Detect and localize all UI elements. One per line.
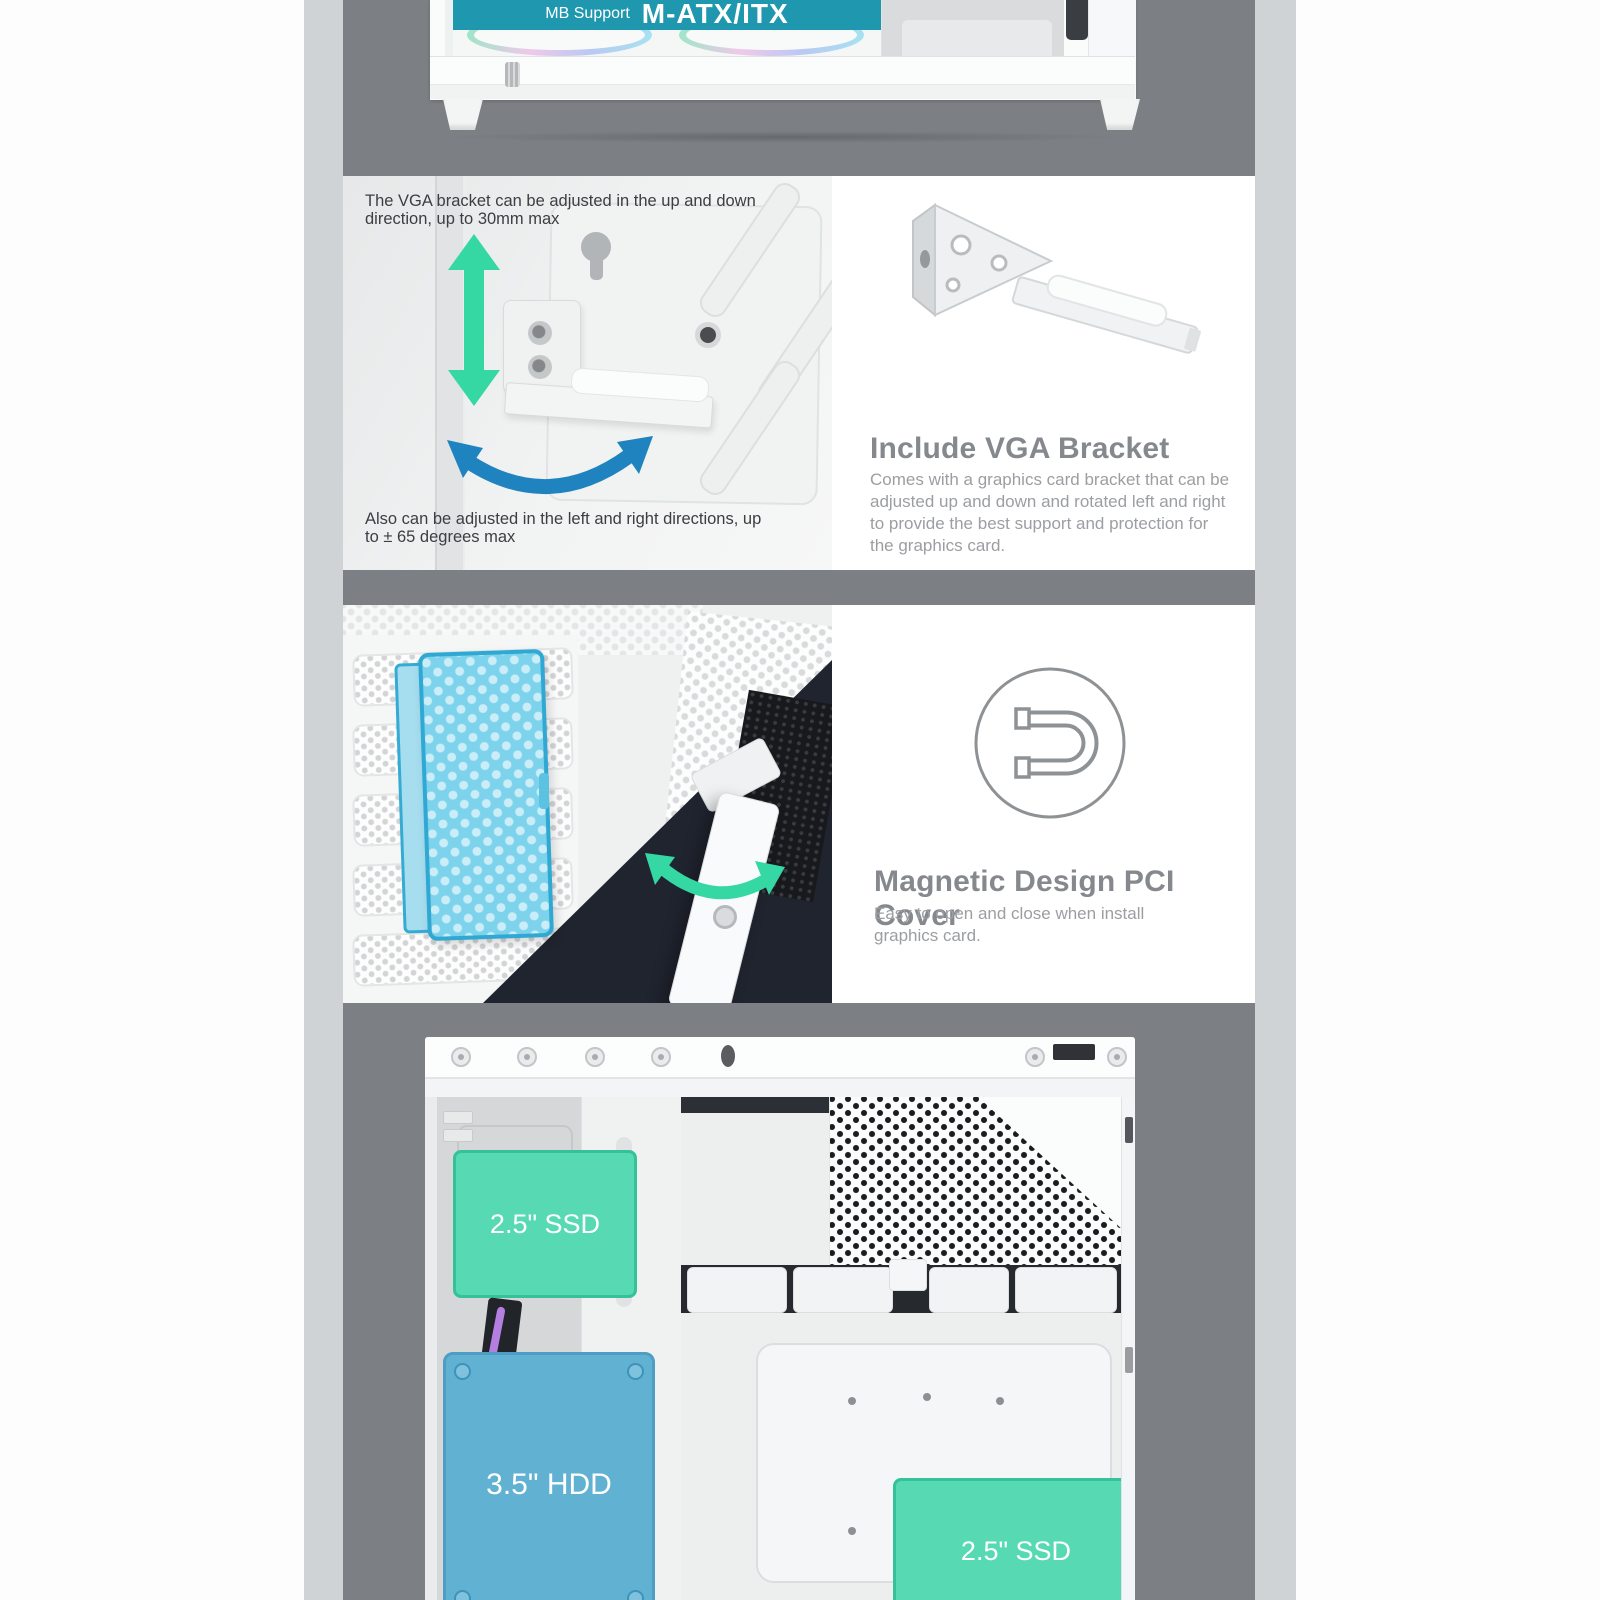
case-rear-edge: [1121, 1097, 1135, 1600]
screw-icon: [1107, 1047, 1127, 1067]
rotate-arrow-small-icon: [643, 851, 787, 917]
ssd-top-label: 2.5" SSD: [490, 1209, 600, 1240]
section-vga-bracket: The VGA bracket can be adjusted in the u…: [343, 176, 1255, 570]
ssd-top: 2.5" SSD: [453, 1150, 637, 1298]
keyhole-slot: [590, 256, 603, 280]
case-top-lip: [425, 1079, 1135, 1098]
thumbscrew-knob: [505, 62, 520, 87]
case-interior-floor: [882, 0, 1064, 56]
grommet-clip: [889, 1259, 927, 1291]
pci-cover-photo: [343, 605, 832, 1003]
tempered-glass-panel: MB Support M-ATX/ITX: [445, 0, 882, 56]
grommet-cover: [793, 1267, 893, 1313]
standoff-hole: [923, 1393, 931, 1401]
left-gray-strip: [304, 0, 343, 1600]
standoff-hole: [848, 1397, 856, 1405]
case-bottom-frame: [430, 56, 1135, 100]
bracket-swivel-block: [503, 300, 581, 394]
cable-clip: [443, 1129, 473, 1142]
ssd-bottom-label: 2.5" SSD: [961, 1536, 1071, 1567]
standoff-hole: [848, 1527, 856, 1535]
psu-shroud: [829, 1097, 1121, 1267]
right-gray-strip: [1255, 0, 1296, 1600]
hdd-drive: 3.5" HDD: [443, 1352, 655, 1600]
grommet-cover: [687, 1267, 787, 1313]
screw-icon: [454, 1590, 471, 1600]
screw-icon: [627, 1590, 644, 1600]
shroud-vent-dots: [830, 1097, 1121, 1267]
pci-cover-handle: [539, 773, 549, 809]
standoff-hole: [996, 1397, 1004, 1405]
vga-bracket-photo: The VGA bracket can be adjusted in the u…: [343, 176, 832, 570]
screw-icon: [454, 1363, 471, 1380]
section-case-bottom: MB Support M-ATX/ITX: [343, 0, 1255, 176]
bottom-frame-seam: [430, 84, 1135, 99]
ssd-bottom: 2.5" SSD: [893, 1478, 1121, 1600]
screw-icon: [627, 1363, 644, 1380]
pci-cover-description: Easy to open and close when install grap…: [874, 903, 1214, 947]
bracket-hole: [528, 321, 552, 345]
hdd-label: 3.5" HDD: [486, 1468, 612, 1502]
magnet-icon: [972, 665, 1128, 821]
case-top-frame: [425, 1037, 1135, 1079]
rgb-fan-ring: [467, 30, 652, 56]
rear-latch: [1125, 1347, 1133, 1373]
case-interior: 2.5" SSD 3.5" HDD: [425, 1097, 1135, 1600]
psu-shroud-edge: [902, 20, 1052, 56]
rgb-fan-ring: [679, 30, 864, 56]
section-divider: [343, 570, 1255, 605]
pci-cover-info-panel: Magnetic Design PCI Cover Easy to open a…: [832, 605, 1255, 1003]
highlighted-pci-cover: [418, 649, 554, 941]
section-interior: 2.5" SSD 3.5" HDD: [343, 1003, 1255, 1600]
annotation-left-right: Also can be adjusted in the left and rig…: [365, 510, 815, 546]
rear-latch: [1125, 1117, 1133, 1143]
section-pci-cover: Magnetic Design PCI Cover Easy to open a…: [343, 605, 1255, 1003]
case-foot-left: [443, 99, 483, 130]
vga-bracket-description: Comes with a graphics card bracket that …: [870, 469, 1240, 557]
mb-support-banner: MB Support M-ATX/ITX: [453, 0, 881, 30]
case-foot-right: [1100, 99, 1140, 130]
up-down-arrow-icon: [448, 234, 500, 406]
cable-hole: [721, 1045, 735, 1067]
bracket-hole: [528, 355, 552, 379]
motherboard-tray: 2.5" SSD: [681, 1097, 1121, 1600]
banner-value: M-ATX/ITX: [642, 0, 789, 30]
annotation-up-down: The VGA bracket can be adjusted in the u…: [365, 192, 795, 228]
screw-icon: [451, 1047, 471, 1067]
rotate-arrow-icon: [443, 434, 657, 514]
banner-label: MB Support: [545, 5, 629, 23]
grommet-cover: [929, 1267, 1009, 1313]
case-shadow: [439, 131, 1129, 143]
pc-case-bottom-photo: MB Support M-ATX/ITX: [430, 0, 1135, 99]
top-io-vent: [1053, 1044, 1095, 1060]
rgb-fans: [453, 30, 881, 56]
screw-hole: [695, 322, 721, 348]
grommet-cover: [1015, 1267, 1117, 1313]
vga-bracket-heading: Include VGA Bracket: [870, 432, 1169, 466]
screw-icon: [517, 1047, 537, 1067]
screw-icon: [651, 1047, 671, 1067]
product-infographic: MB Support M-ATX/ITX: [343, 0, 1255, 1600]
pc-case-interior-photo: 2.5" SSD 3.5" HDD: [425, 1037, 1135, 1600]
vga-bracket-info-panel: Include VGA Bracket Comes with a graphic…: [832, 176, 1255, 570]
cable-clip: [443, 1111, 473, 1124]
screw-icon: [585, 1047, 605, 1067]
rear-cables: [1066, 0, 1088, 40]
screw-icon: [1025, 1047, 1045, 1067]
vga-bracket-render: [877, 191, 1207, 426]
